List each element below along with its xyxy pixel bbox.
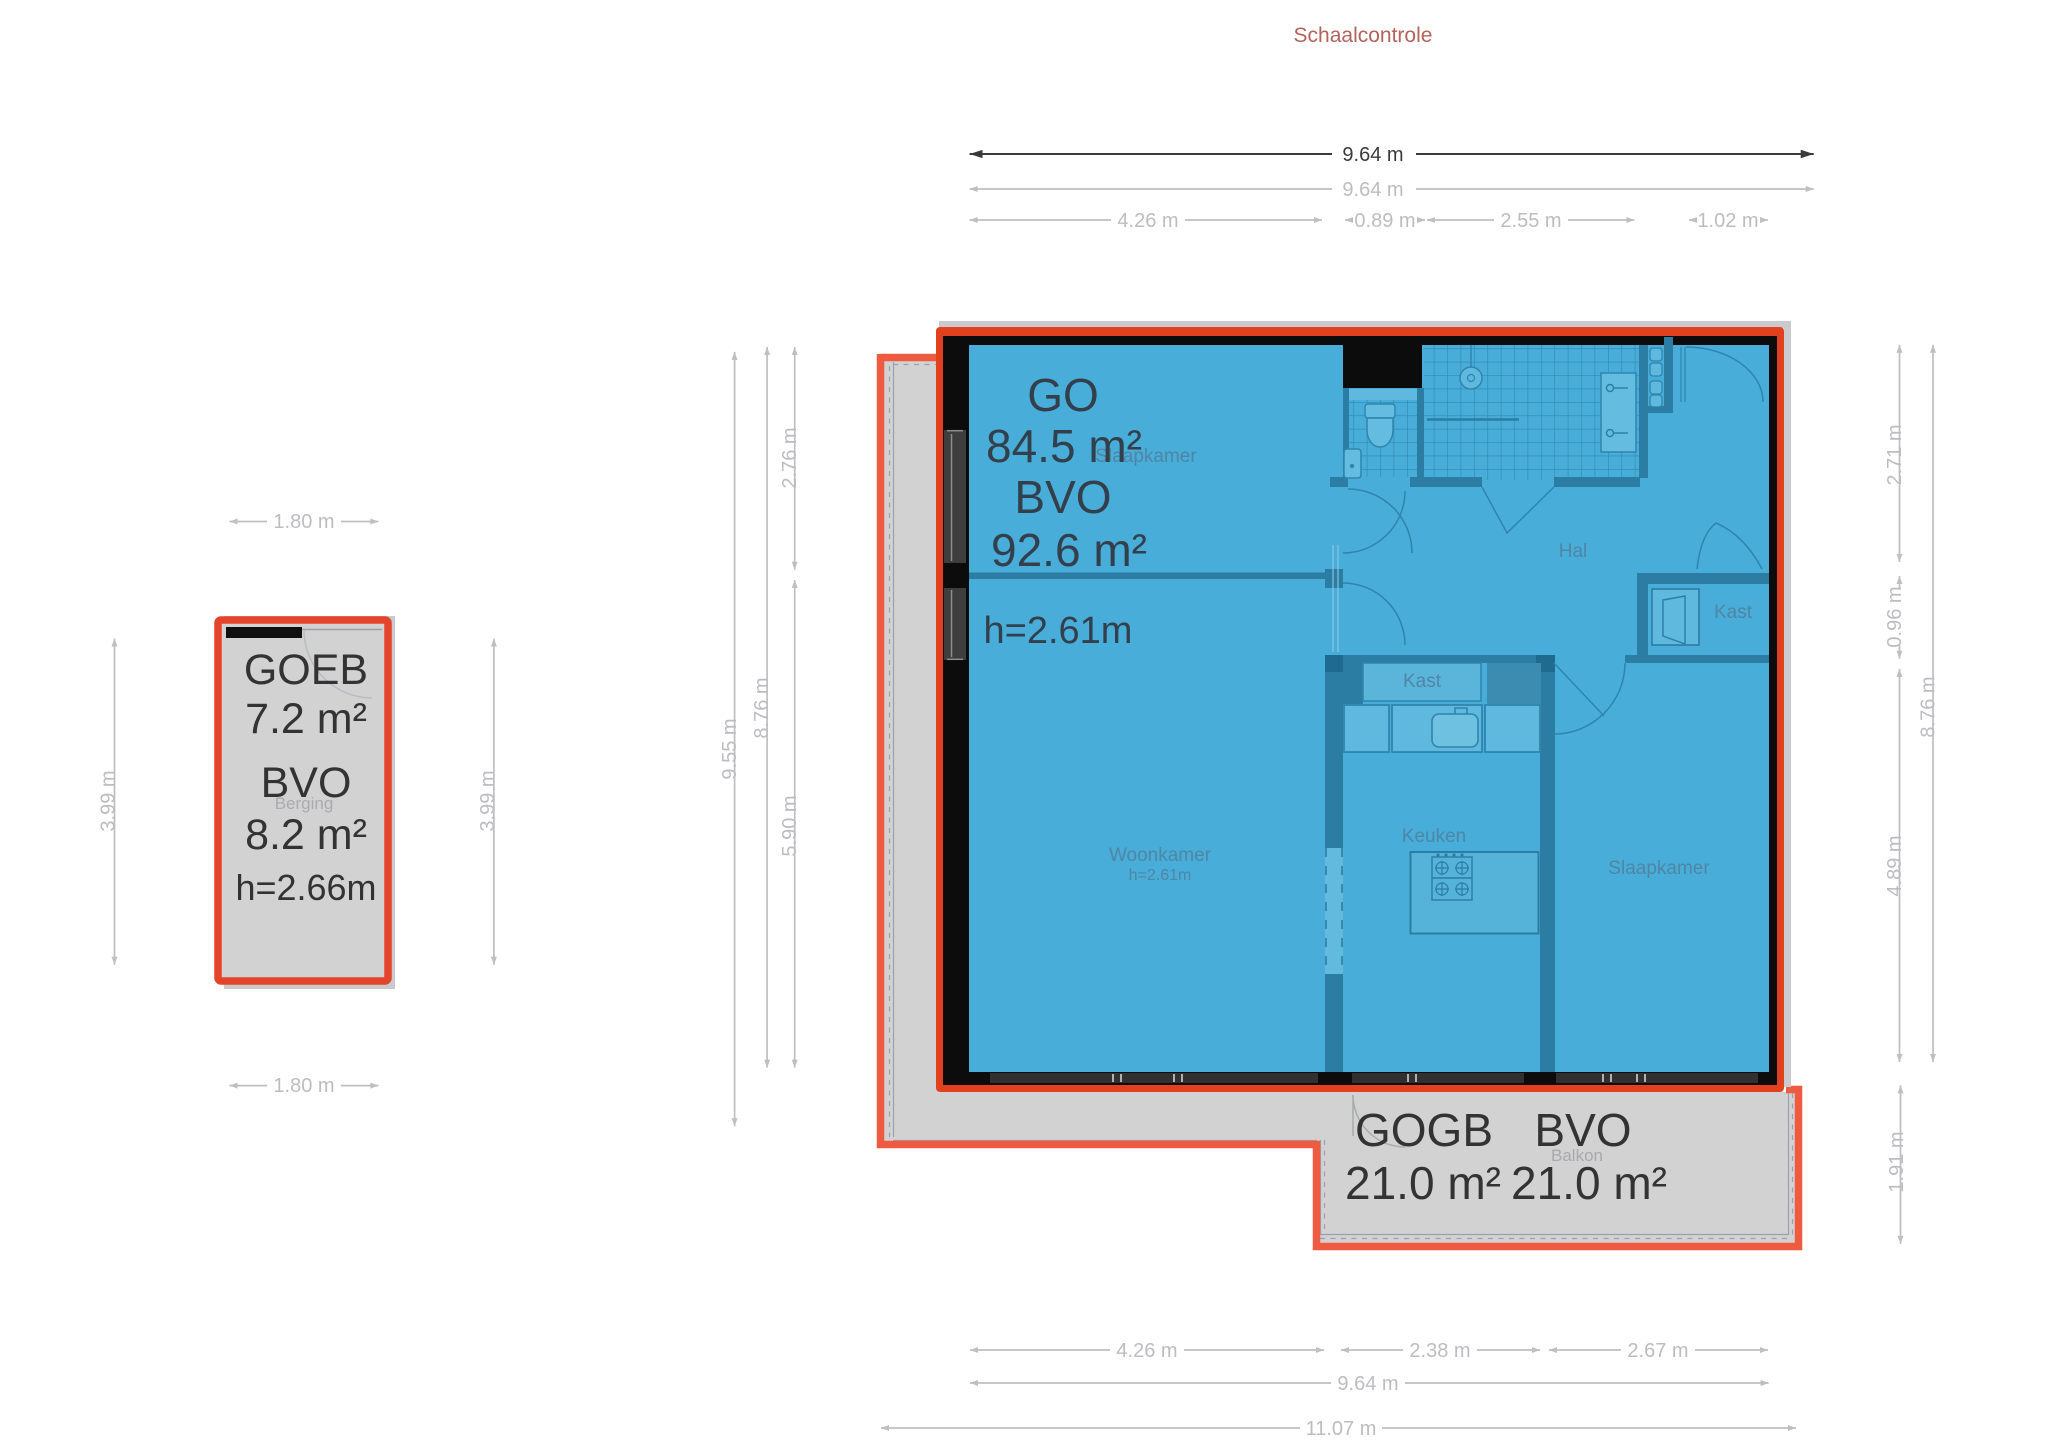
svg-text:5.90 m: 5.90 m	[779, 795, 801, 856]
svg-text:Kast: Kast	[1403, 671, 1442, 692]
svg-text:GOEB: GOEB	[244, 646, 368, 694]
svg-text:2.67 m: 2.67 m	[1627, 1340, 1688, 1362]
svg-text:2.38 m: 2.38 m	[1409, 1340, 1470, 1362]
svg-text:Keuken: Keuken	[1402, 826, 1466, 847]
svg-text:1.02 m: 1.02 m	[1697, 210, 1758, 232]
svg-text:9.64 m: 9.64 m	[1337, 1373, 1398, 1395]
svg-text:Balkon: Balkon	[1551, 1146, 1603, 1165]
svg-text:0.96 m: 0.96 m	[1884, 586, 1906, 647]
svg-text:8.76 m: 8.76 m	[1918, 676, 1940, 737]
svg-text:84.5 m²: 84.5 m²	[986, 420, 1142, 472]
svg-text:1.80 m: 1.80 m	[273, 1075, 334, 1097]
svg-text:8.2 m²: 8.2 m²	[245, 811, 367, 859]
svg-text:1.91 m: 1.91 m	[1886, 1131, 1908, 1192]
svg-text:GOGB: GOGB	[1355, 1104, 1493, 1156]
svg-text:h=2.61m: h=2.61m	[1129, 867, 1192, 884]
svg-text:2.71 m: 2.71 m	[1884, 424, 1906, 485]
svg-text:11.07 m: 11.07 m	[1306, 1418, 1377, 1440]
svg-text:4.26 m: 4.26 m	[1116, 1340, 1177, 1362]
svg-text:3.99 m: 3.99 m	[477, 770, 499, 831]
svg-text:BVO: BVO	[261, 759, 352, 807]
svg-text:8.76 m: 8.76 m	[751, 677, 773, 738]
svg-text:0.89 m: 0.89 m	[1354, 210, 1415, 232]
svg-text:Kast: Kast	[1714, 602, 1753, 623]
svg-text:1.80 m: 1.80 m	[273, 511, 334, 533]
svg-text:4.89 m: 4.89 m	[1884, 835, 1906, 896]
svg-text:3.99 m: 3.99 m	[98, 770, 120, 831]
svg-text:2.76 m: 2.76 m	[779, 427, 801, 488]
svg-text:21.0 m²: 21.0 m²	[1345, 1157, 1501, 1209]
svg-text:2.55 m: 2.55 m	[1500, 210, 1561, 232]
svg-text:4.26 m: 4.26 m	[1117, 210, 1178, 232]
svg-text:h=2.66m: h=2.66m	[235, 867, 376, 908]
svg-text:9.64 m: 9.64 m	[1342, 179, 1403, 201]
svg-text:Schaalcontrole: Schaalcontrole	[1294, 24, 1433, 47]
svg-text:Woonkamer: Woonkamer	[1109, 845, 1212, 866]
svg-text:GO: GO	[1027, 369, 1099, 421]
svg-text:9.64 m: 9.64 m	[1342, 144, 1403, 166]
svg-text:BVO: BVO	[1014, 471, 1111, 523]
svg-text:92.6 m²: 92.6 m²	[991, 524, 1147, 576]
svg-text:Slaapkamer: Slaapkamer	[1608, 858, 1710, 879]
svg-text:9.55 m: 9.55 m	[719, 718, 741, 779]
svg-text:Hal: Hal	[1559, 541, 1588, 562]
svg-text:7.2 m²: 7.2 m²	[245, 695, 367, 743]
svg-text:h=2.61m: h=2.61m	[984, 610, 1133, 652]
